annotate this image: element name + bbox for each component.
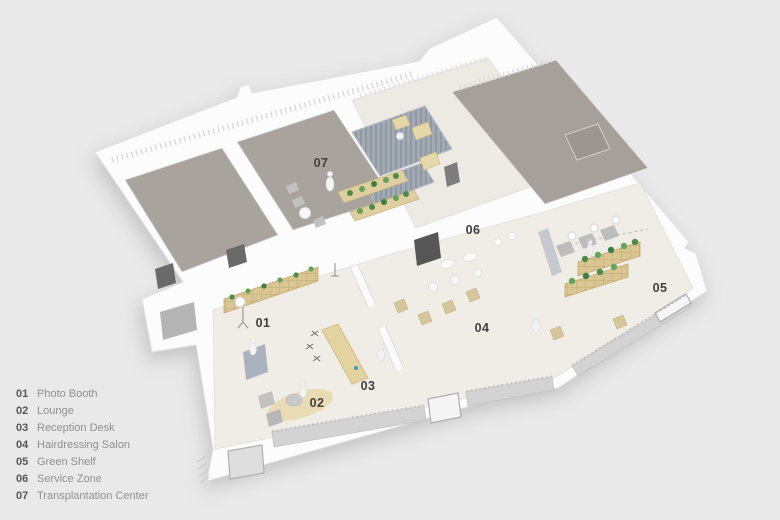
legend-item-label: Green Shelf <box>37 454 96 471</box>
legend-item-number: 04 <box>16 437 37 454</box>
plan-marker-01: 01 <box>256 316 271 330</box>
legend-item-number: 01 <box>16 386 37 403</box>
pendant-lamp <box>495 239 502 246</box>
legend-item-number: 07 <box>16 488 37 505</box>
legend-item-number: 05 <box>16 454 37 471</box>
legend-item-label: Transplantation Center <box>37 488 149 505</box>
legend-item-label: Lounge <box>37 403 74 420</box>
legend-item-label: Hairdressing Salon <box>37 437 130 454</box>
round-stool <box>451 276 460 285</box>
legend-item-label: Reception Desk <box>37 420 115 437</box>
desk-accessory <box>354 366 358 370</box>
legend-item: 01 Photo Booth <box>16 386 149 403</box>
legend-item: 04 Hairdressing Salon <box>16 437 149 454</box>
plan-marker-07: 07 <box>314 156 329 170</box>
round-stool <box>474 269 482 277</box>
legend-item-label: Photo Booth <box>37 386 98 403</box>
plan-marker-02: 02 <box>310 396 325 410</box>
round-table <box>300 208 311 219</box>
legend: 01 Photo Booth 02 Lounge 03 Reception De… <box>16 386 149 505</box>
chair <box>397 133 404 140</box>
legend-item: 02 Lounge <box>16 403 149 420</box>
legend-item-number: 06 <box>16 471 37 488</box>
legend-item-label: Service Zone <box>37 471 102 488</box>
legend-item: 05 Green Shelf <box>16 454 149 471</box>
person-figure <box>250 339 257 355</box>
legend-item-number: 03 <box>16 420 37 437</box>
legend-item: 07 Transplantation Center <box>16 488 149 505</box>
pendant-lamp <box>509 233 516 240</box>
plan-marker-04: 04 <box>475 321 490 335</box>
person-figure <box>378 345 385 361</box>
person-figure <box>533 315 540 333</box>
person-figure <box>326 171 334 191</box>
legend-item-number: 02 <box>16 403 37 420</box>
round-stool <box>429 283 438 292</box>
window-frame-left <box>228 445 264 479</box>
plan-marker-03: 03 <box>361 379 376 393</box>
legend-item: 06 Service Zone <box>16 471 149 488</box>
person-figure <box>587 240 593 256</box>
person-figure <box>300 382 307 398</box>
floor-plan-stage: 01 02 03 04 05 06 07 01 Photo Booth 02 L… <box>0 0 780 520</box>
plan-marker-06: 06 <box>466 223 481 237</box>
legend-item: 03 Reception Desk <box>16 420 149 437</box>
plan-marker-05: 05 <box>653 281 668 295</box>
styling-chair <box>286 394 302 406</box>
door-frame-center <box>428 393 461 423</box>
